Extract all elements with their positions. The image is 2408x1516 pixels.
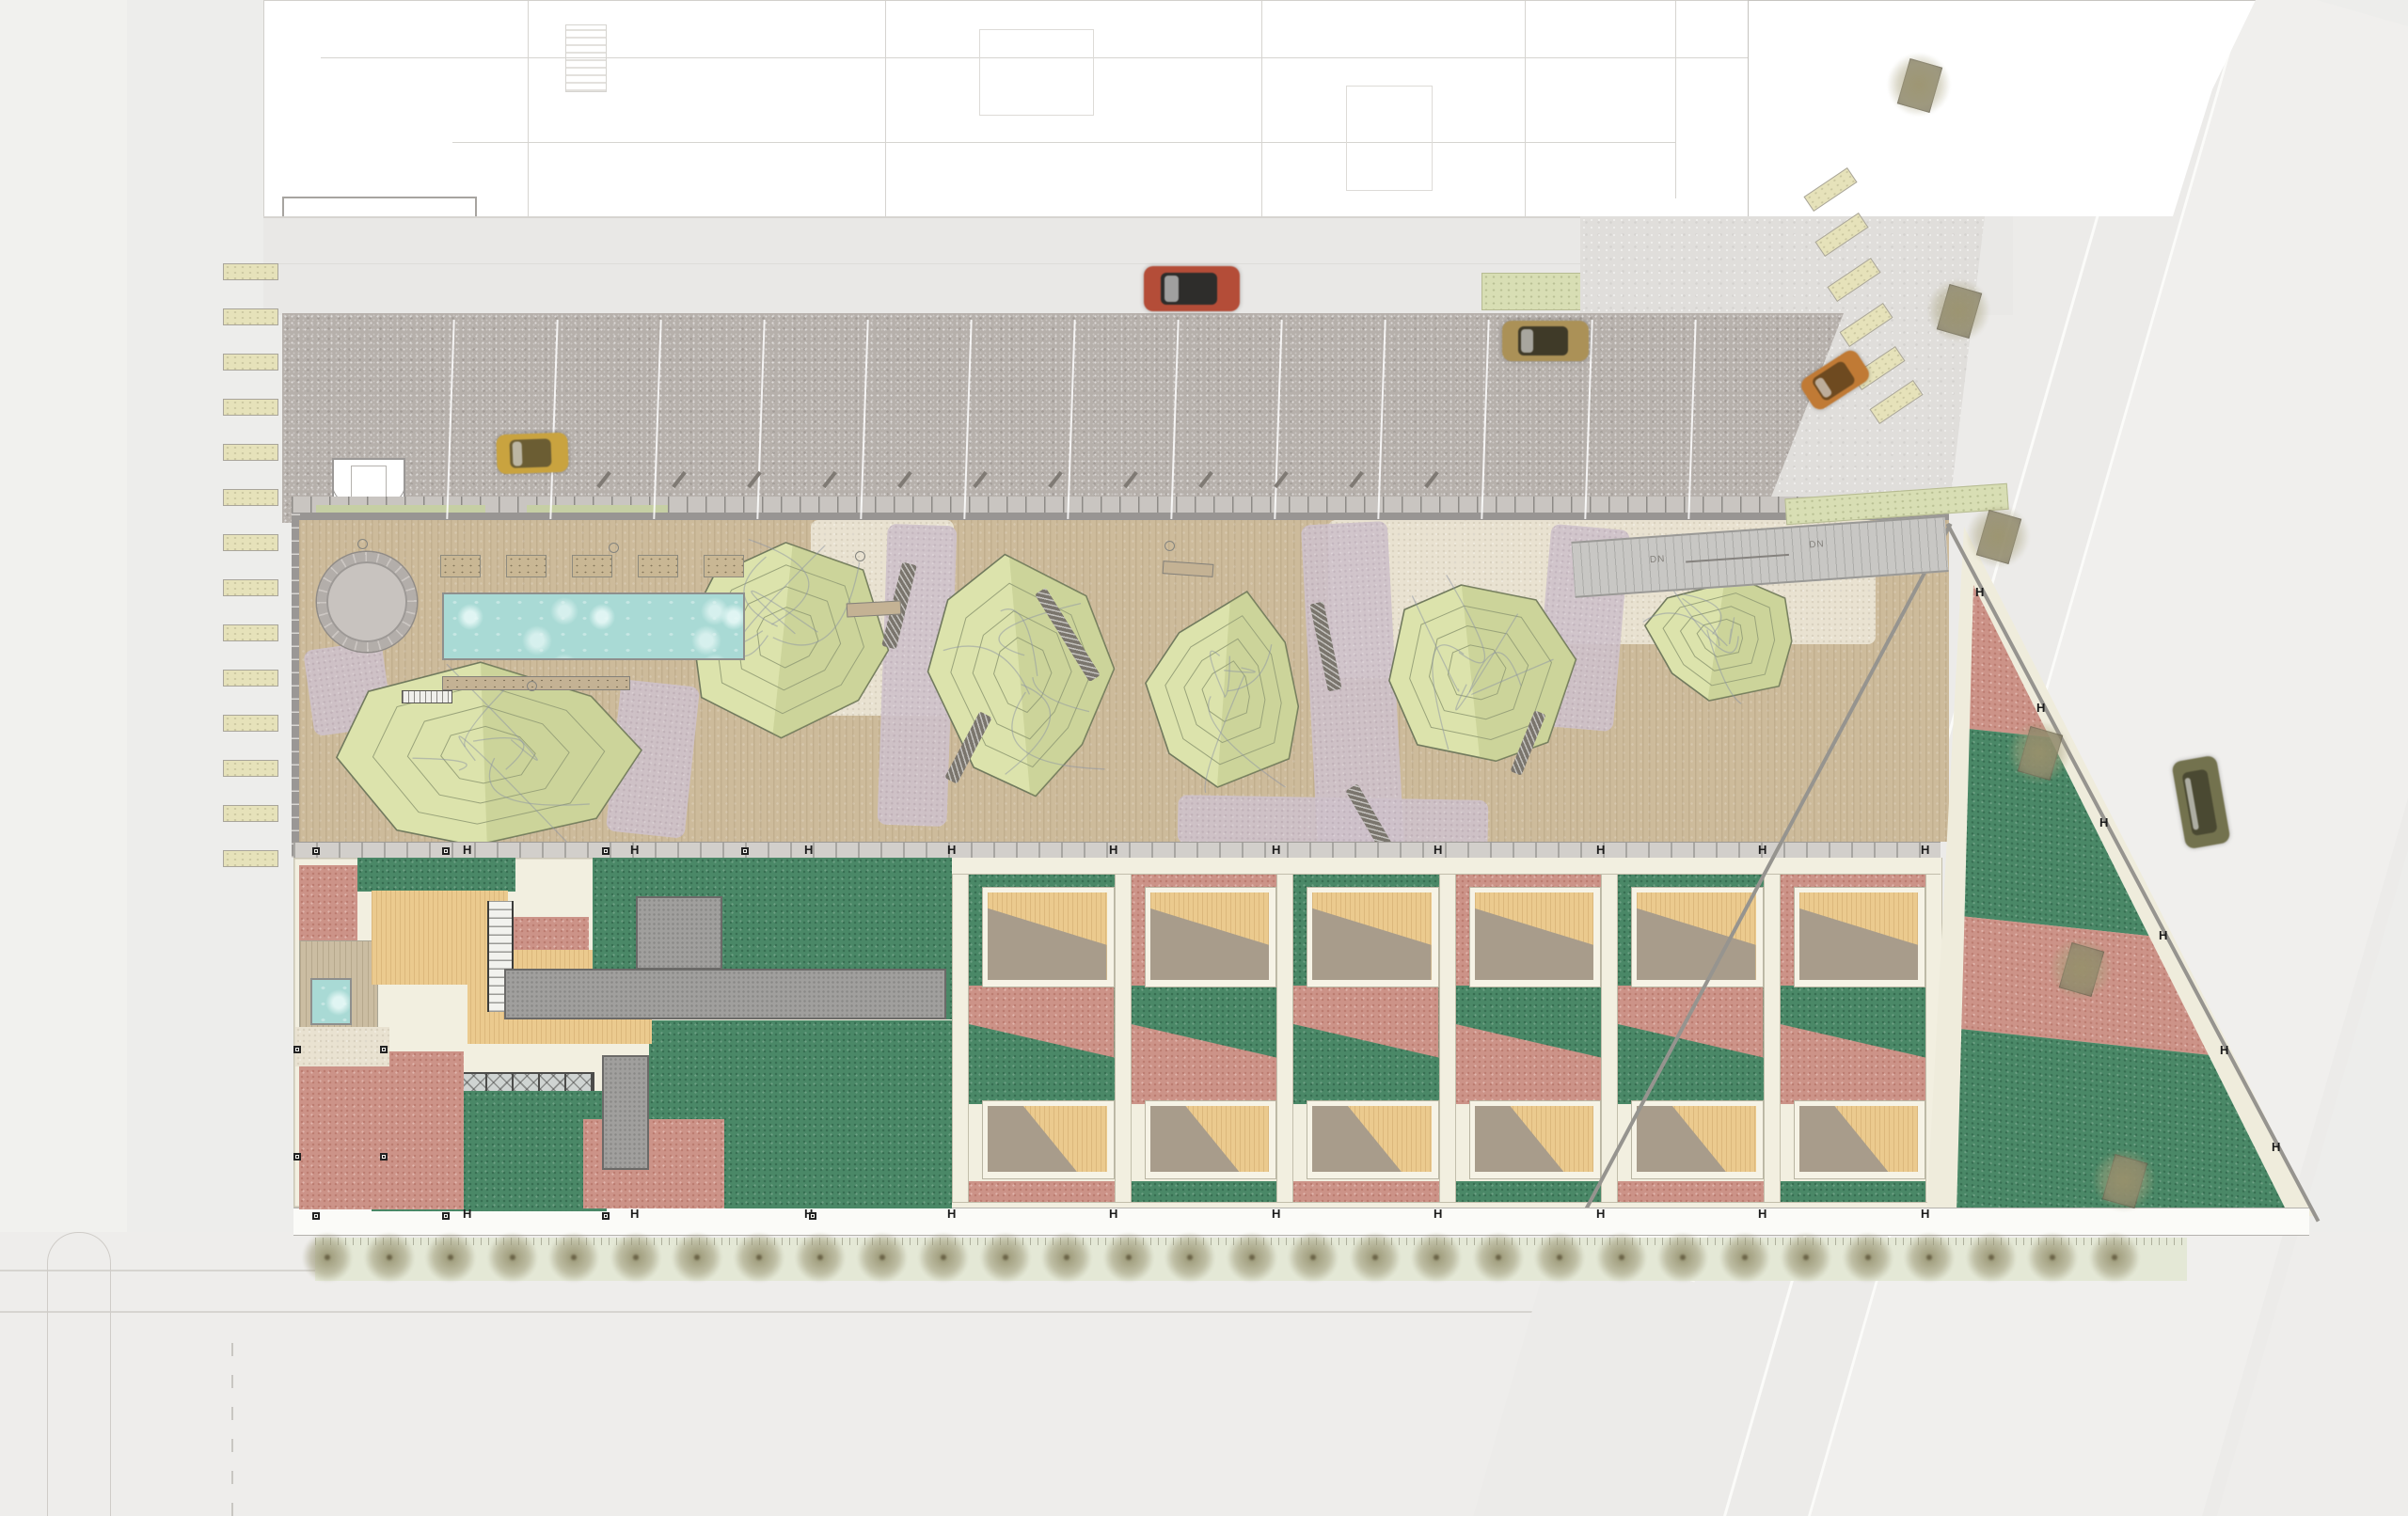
floorplan-line <box>452 142 1675 143</box>
wall-marker <box>741 847 749 855</box>
parking-stall <box>223 850 278 867</box>
column-marker: H <box>2099 818 2108 828</box>
planter-bench <box>440 555 481 577</box>
column-marker: H <box>1596 1209 1605 1219</box>
floorplan-line <box>528 1 529 217</box>
tree-trunk-icon <box>1372 1255 1378 1260</box>
street-tree <box>1103 1232 1154 1283</box>
tree-trunk-icon <box>1803 1255 1809 1260</box>
sedum-patch <box>299 1051 464 1209</box>
street-tree <box>548 1232 599 1283</box>
street-tree <box>672 1232 722 1283</box>
column-marker: H <box>1434 1209 1442 1219</box>
street-line <box>263 263 1674 264</box>
column-marker: H <box>1975 588 1984 597</box>
tree-trunk-icon <box>1003 1255 1008 1260</box>
street-tree <box>610 1232 661 1283</box>
bay-terrace <box>982 887 1115 987</box>
wall-marker <box>312 847 320 855</box>
street-tree <box>1966 1232 2017 1283</box>
street-tree <box>1926 278 1990 342</box>
hedge-sliver <box>527 505 668 513</box>
tree-trunk-icon <box>1680 1255 1686 1260</box>
bay-wall <box>1439 858 1456 1219</box>
terrace-shadow-wedge <box>1475 1106 1594 1172</box>
parking-stall <box>223 308 278 325</box>
tree-trunk-icon <box>1310 1255 1316 1260</box>
wall-marker <box>293 1046 301 1053</box>
tree-trunk-icon <box>1249 1255 1255 1260</box>
column-marker: H <box>1921 1209 1929 1219</box>
terrace-shadow-wedge <box>1150 892 1270 980</box>
parking-stall <box>223 670 278 687</box>
terrace-wood-floor <box>1637 1106 1756 1172</box>
floorplan-line <box>1525 1 1526 217</box>
parking-stall <box>223 354 278 371</box>
street-tree <box>2049 937 2113 1001</box>
street-tree <box>302 1232 353 1283</box>
planted-mound <box>1131 577 1324 808</box>
down-label: DN <box>1809 539 1825 550</box>
deck-marker-circle <box>357 539 368 549</box>
tree-trunk-icon <box>387 1255 392 1260</box>
bay-terrace <box>1145 887 1277 987</box>
car-windshield <box>512 442 522 466</box>
tree-trunk-icon <box>1496 1255 1501 1260</box>
bay-wall <box>1764 858 1781 1219</box>
tree-trunk-icon <box>2050 1255 2055 1260</box>
planter-bench <box>506 555 547 577</box>
terrace-wood-floor <box>1150 892 1270 980</box>
street-tree <box>1781 1232 1831 1283</box>
bay-terrace <box>1631 887 1764 987</box>
tree-trunk-icon <box>879 1255 885 1260</box>
parking-stall <box>223 760 278 777</box>
street-tree <box>487 1232 538 1283</box>
column-marker: H <box>1758 1209 1766 1219</box>
tree-trunk-icon <box>1064 1255 1069 1260</box>
courtyard-top-wall <box>292 513 1949 520</box>
column-marker: H <box>1758 845 1766 855</box>
wall-marker <box>380 1153 388 1161</box>
car-windshield <box>1521 329 1533 354</box>
street-tree <box>425 1232 476 1283</box>
street-tree <box>795 1232 846 1283</box>
site-plan-canvas: DN DN HHHHHHHHHHHHHHHHHHHHHHHHHH <box>0 0 2408 1516</box>
column-marker: H <box>1921 845 1929 855</box>
concrete-patch <box>295 1027 389 1066</box>
bay-terrace <box>1794 887 1926 987</box>
tree-trunk-icon <box>1742 1255 1748 1260</box>
tree-trunk-icon <box>1619 1255 1624 1260</box>
column-marker: H <box>947 845 956 855</box>
bay-terrace <box>982 1100 1115 1179</box>
street-tree <box>2089 1232 2140 1283</box>
tree-trunk-icon <box>1434 1255 1439 1260</box>
column-marker: H <box>1272 1209 1280 1219</box>
wall-marker <box>602 1212 610 1220</box>
column-marker: H <box>804 845 813 855</box>
street-tree <box>1041 1232 1092 1283</box>
terrace-wood-floor <box>988 1106 1107 1172</box>
bay-wall <box>1276 858 1293 1219</box>
parking-stall <box>223 624 278 641</box>
terrace-wood-floor <box>1799 892 1919 980</box>
bench <box>1163 561 1214 577</box>
wall-marker <box>442 1212 450 1220</box>
parking-stall <box>223 444 278 461</box>
terrace-wood-floor <box>1312 1106 1432 1172</box>
tree-trunk-icon <box>510 1255 515 1260</box>
bay-terrace <box>1469 1100 1602 1179</box>
terrace-shadow-wedge <box>1312 892 1432 980</box>
planter-bench <box>704 555 744 577</box>
wall-marker <box>809 1212 816 1220</box>
tree-trunk-icon <box>817 1255 823 1260</box>
column-marker: H <box>1109 1209 1117 1219</box>
parking-stall <box>223 805 278 822</box>
street-tree <box>1887 53 1951 117</box>
wall-marker <box>293 1153 301 1161</box>
street-tree <box>1288 1232 1339 1283</box>
ramp-arrow <box>1686 554 1789 562</box>
street-tree <box>1227 1232 1277 1283</box>
deck-marker-circle <box>1164 541 1175 551</box>
street-tree <box>1534 1232 1585 1283</box>
terrace-shadow-wedge <box>988 892 1107 980</box>
tree-trunk-icon <box>756 1255 762 1260</box>
existing-building-footprint <box>263 0 1794 218</box>
bay-terrace <box>1145 1100 1277 1179</box>
street-tree <box>1350 1232 1401 1283</box>
roof-slab <box>636 896 722 970</box>
column-marker: H <box>463 845 471 855</box>
parking-stall <box>223 489 278 506</box>
road-dashed-line <box>231 1335 233 1516</box>
floorplan-line <box>1261 1 1262 217</box>
car-tan <box>1502 321 1589 361</box>
column-marker: H <box>1109 845 1117 855</box>
street-tree <box>2092 1148 2156 1212</box>
roof-slab <box>602 1055 649 1170</box>
car-gold <box>496 433 568 475</box>
spa-pool <box>326 561 407 642</box>
tree-trunk-icon <box>694 1255 700 1260</box>
car-red <box>1144 266 1240 311</box>
parking-stall <box>223 715 278 732</box>
down-label: DN <box>1650 554 1666 565</box>
tree-trunk-icon <box>1865 1255 1871 1260</box>
tree-trunk-icon <box>1557 1255 1562 1260</box>
street-tree <box>1719 1232 1770 1283</box>
street-tree <box>1966 504 2030 568</box>
road-median <box>47 1232 111 1516</box>
bay-top-band <box>952 858 1941 875</box>
path-patch <box>1178 795 1489 842</box>
terrace-wood-floor <box>1475 892 1594 980</box>
floorplan-line <box>1675 1 1676 198</box>
terrace-shadow-wedge <box>1799 1106 1919 1172</box>
street-tree <box>1473 1232 1524 1283</box>
deck-marker-circle <box>527 681 537 691</box>
terrace-shadow-wedge <box>1150 1106 1270 1172</box>
terrace-wood-floor <box>1312 892 1432 980</box>
tree-trunk-icon <box>325 1255 330 1260</box>
parking-stall <box>223 263 278 280</box>
terrace-shadow-wedge <box>1312 1106 1432 1172</box>
column-marker: H <box>630 845 639 855</box>
car-windshield <box>1164 276 1178 303</box>
tree-trunk-icon <box>1988 1255 1994 1260</box>
lawn-patch <box>357 858 515 892</box>
tree-trunk-icon <box>1187 1255 1193 1260</box>
tree-trunk-icon <box>633 1255 639 1260</box>
parking-stall <box>223 534 278 551</box>
terrace-wood-floor <box>1799 1106 1919 1172</box>
street-tree <box>980 1232 1031 1283</box>
south-walkway <box>293 1208 2309 1236</box>
column-marker: H <box>2272 1143 2280 1152</box>
column-marker: H <box>630 1209 639 1219</box>
street-tree <box>2007 720 2071 784</box>
swimming-pool <box>442 592 745 660</box>
street-tree <box>1164 1232 1215 1283</box>
stair-glyph <box>402 690 452 703</box>
bay-terrace <box>1631 1100 1764 1179</box>
street-tree <box>2027 1232 2078 1283</box>
tree-trunk-icon <box>571 1255 577 1260</box>
street-tree <box>1657 1232 1708 1283</box>
tree-trunk-icon <box>2112 1255 2117 1260</box>
terrace-wood-floor <box>1637 892 1756 980</box>
terrace-shadow-wedge <box>1637 1106 1756 1172</box>
column-marker: H <box>947 1209 956 1219</box>
bay-terrace <box>1307 1100 1439 1179</box>
terrace-shadow-wedge <box>1637 892 1756 980</box>
street-tree <box>364 1232 415 1283</box>
street-line <box>263 216 1792 218</box>
floorplan-room <box>979 29 1094 116</box>
deck-marker-circle <box>609 543 619 553</box>
terrace-shadow-wedge <box>1799 892 1919 980</box>
column-marker: H <box>463 1209 471 1219</box>
deck-marker-circle <box>855 551 865 561</box>
terrace-shadow-wedge <box>1475 892 1594 980</box>
tree-trunk-icon <box>448 1255 453 1260</box>
street-tree <box>1843 1232 1893 1283</box>
hedge-sliver <box>316 505 485 513</box>
column-marker: H <box>2220 1046 2228 1055</box>
street-tree <box>857 1232 908 1283</box>
column-marker: H <box>1434 845 1442 855</box>
floorplan-room <box>1346 86 1433 191</box>
column-marker: H <box>1272 845 1280 855</box>
terrace-wood-floor <box>1150 1106 1270 1172</box>
floorplan-line <box>885 1 886 217</box>
bay-wall <box>952 858 969 1219</box>
street-tree <box>734 1232 784 1283</box>
street-tree <box>918 1232 969 1283</box>
wall-marker <box>312 1212 320 1220</box>
roof-slab <box>504 969 946 1019</box>
terrace-wood-floor <box>1475 1106 1594 1172</box>
street-tree <box>1411 1232 1462 1283</box>
wall-marker <box>602 847 610 855</box>
planted-mound <box>1355 550 1593 795</box>
wall-marker <box>380 1046 388 1053</box>
parking-lot <box>282 313 1844 523</box>
floorplan-stair <box>565 24 607 92</box>
bay-terrace <box>1469 887 1602 987</box>
column-marker: H <box>2036 703 2045 713</box>
tree-trunk-icon <box>1126 1255 1132 1260</box>
tree-trunk-icon <box>1926 1255 1932 1260</box>
column-marker: H <box>2159 931 2167 940</box>
street-tree <box>1596 1232 1647 1283</box>
parking-stall <box>223 399 278 416</box>
bay-terrace <box>1794 1100 1926 1179</box>
bay-terrace <box>1307 887 1439 987</box>
plunge-pool <box>310 978 352 1025</box>
terrace-shadow-wedge <box>988 1106 1107 1172</box>
planter-bench <box>638 555 678 577</box>
parking-stall <box>223 579 278 596</box>
planter-bench <box>572 555 612 577</box>
bench <box>847 600 902 617</box>
bay-wall <box>1115 858 1132 1219</box>
tree-trunk-icon <box>941 1255 946 1260</box>
street-tree <box>1904 1232 1955 1283</box>
terrace-wood-floor <box>988 892 1107 980</box>
wall-marker <box>442 847 450 855</box>
column-marker: H <box>1596 845 1605 855</box>
